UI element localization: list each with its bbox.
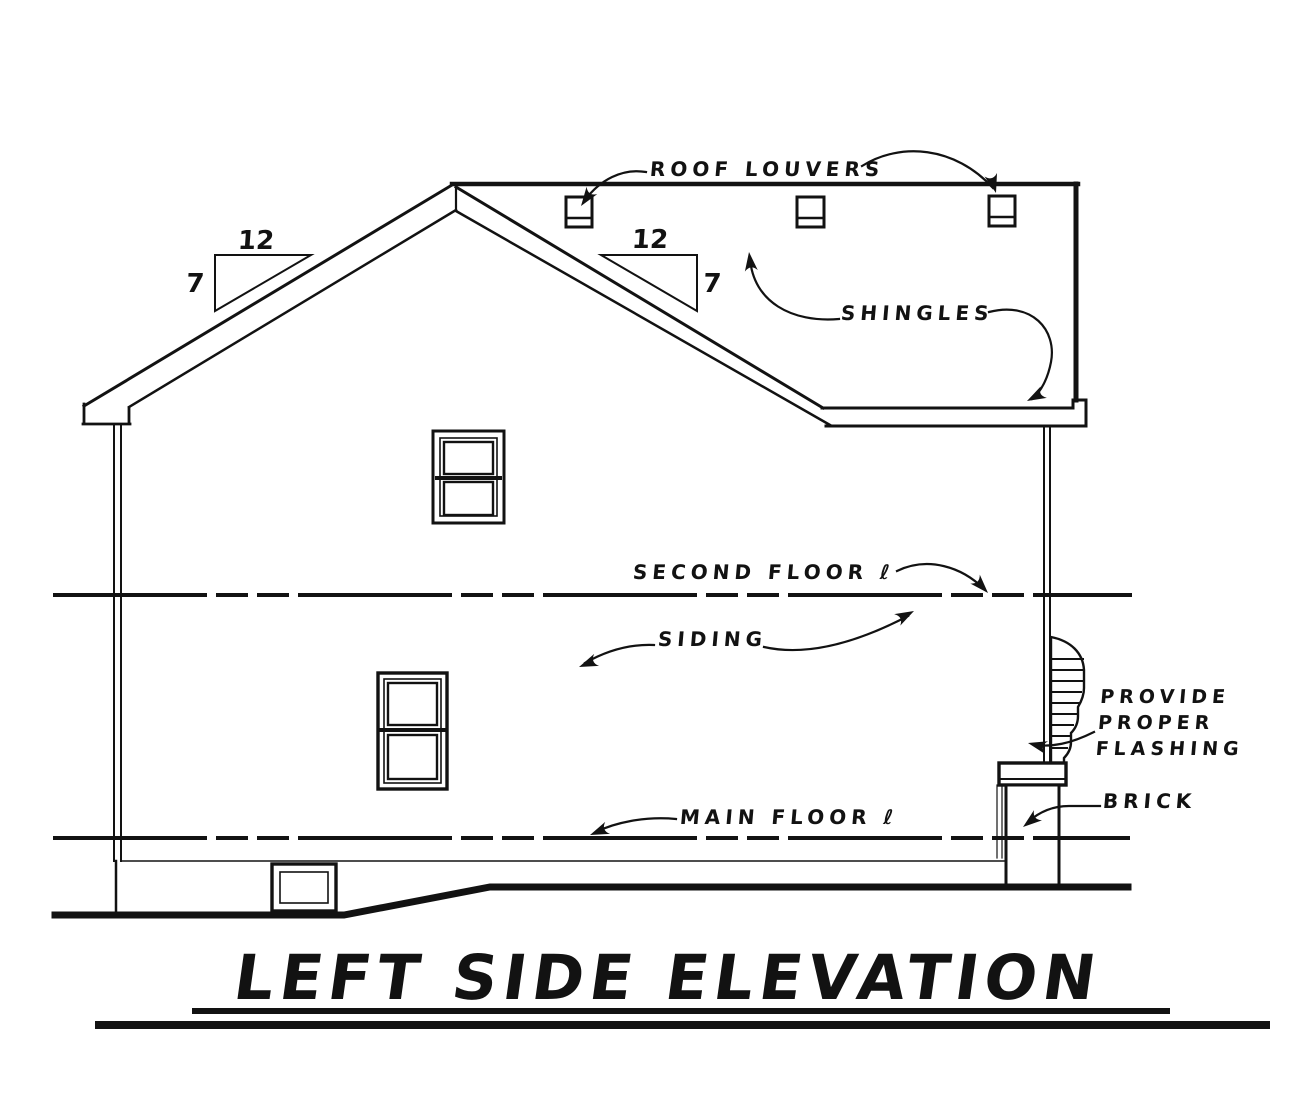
leader-second-floor (897, 564, 984, 589)
flashing-label: PROVIDE PROPER FLASHING (1095, 684, 1250, 762)
slope-rise-label-right: 7 (702, 269, 722, 299)
elevation-drawing-sheet: ROOF LOUVERS 12 7 12 7 SHINGLES SECOND F… (0, 0, 1315, 1116)
leader-siding-left (585, 645, 654, 663)
roof-louver-1 (566, 197, 592, 227)
flashing-label-line1: PROVIDE (1099, 684, 1249, 710)
slope-rise-label-left: 7 (185, 269, 205, 299)
flashing-label-line2: PROPER (1097, 710, 1247, 736)
grade-line (55, 887, 1128, 915)
second-floor-window (433, 431, 504, 523)
fascia-end-cap (1073, 400, 1086, 426)
slope-run-label-right: 12 (627, 225, 673, 255)
main-floor-label: MAIN FLOOR ℓ (679, 805, 899, 829)
left-rake-inner (129, 210, 456, 407)
foundation-vent (272, 864, 336, 911)
leader-shingles-left (750, 258, 839, 319)
siding-label: SIDING (657, 627, 768, 651)
roof-louver-3 (989, 196, 1015, 226)
second-floor-label: SECOND FLOOR ℓ (632, 560, 896, 584)
roof-louver-2 (797, 197, 824, 227)
drawing-title: LEFT SIDE ELEVATION (193, 941, 1143, 1014)
left-eave (83, 404, 130, 424)
title-border-rule (95, 1021, 1270, 1029)
flashing-label-line3: FLASHING (1095, 736, 1245, 762)
arrowhead (743, 251, 758, 271)
roof-louvers-label: ROOF LOUVERS (649, 157, 885, 181)
slope-run-label-left: 12 (233, 226, 279, 256)
leader-main-floor (596, 818, 676, 832)
first-floor-window (378, 673, 447, 789)
arrowhead (1024, 386, 1047, 406)
slope-triangle-left (215, 255, 311, 311)
shingles-label: SHINGLES (840, 301, 995, 325)
title-underline (192, 1008, 1170, 1014)
left-rake-outer (84, 185, 452, 406)
leader-shingles-right (989, 310, 1052, 399)
left-wall-corner (114, 426, 121, 914)
leader-siding-right (764, 616, 908, 650)
brick-label: BRICK (1102, 789, 1197, 813)
arrowhead (894, 605, 917, 625)
